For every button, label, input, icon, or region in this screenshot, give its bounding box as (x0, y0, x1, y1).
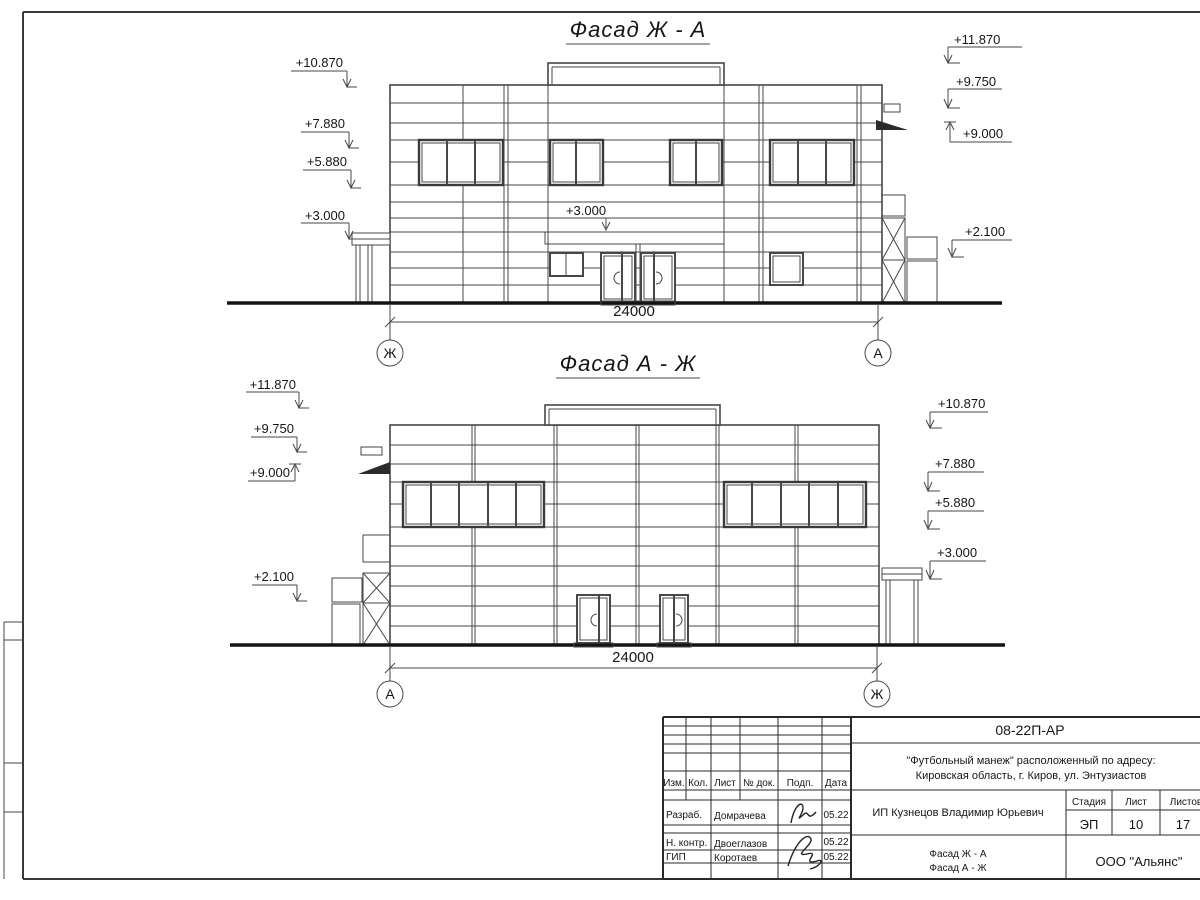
elevation-mark: +2.100 (252, 569, 307, 601)
svg-text:+9.750: +9.750 (254, 421, 294, 436)
side-window (770, 253, 803, 285)
parapet (545, 405, 720, 425)
elevation-mark: +9.750 (251, 421, 307, 452)
dimension-label: 24000 (612, 649, 654, 666)
elevation-mark: +9.000 (944, 122, 1012, 142)
sheet-label: Лист (1125, 797, 1147, 808)
elevation-mark: +7.880 (924, 456, 984, 491)
svg-text:+9.750: +9.750 (956, 74, 996, 89)
axis-label: Ж (384, 345, 397, 361)
elevation-mark: +10.870 (926, 396, 988, 428)
svg-text:+7.880: +7.880 (305, 116, 345, 131)
col-izm: Изм. (663, 778, 684, 789)
svg-text:Двоеглазов: Двоеглазов (714, 839, 767, 850)
sheet-name-line1: Фасад Ж - А (929, 849, 986, 860)
project-name-line1: "Футбольный манеж" расположенный по адре… (906, 755, 1155, 767)
doc-number: 08-22П-АР (995, 722, 1064, 738)
svg-text:+11.870: +11.870 (250, 377, 296, 392)
svg-text:Домрачева: Домрачева (714, 811, 766, 822)
facade-top-stairs (876, 104, 937, 303)
facade-bottom-marks-left: +11.870 +9.750 +9.000 +2.100 (246, 377, 309, 601)
elevation-mark: +2.100 (948, 224, 1012, 257)
organization-name: ООО "Альянс" (1096, 854, 1183, 869)
svg-text:+9.000: +9.000 (250, 465, 290, 480)
dimension-label: 24000 (613, 303, 655, 320)
svg-text:+10.870: +10.870 (296, 55, 343, 70)
sheets-label: Листов (1170, 797, 1200, 808)
facade-bottom-stairs (332, 447, 390, 645)
signature (791, 804, 816, 823)
sheets-value: 17 (1176, 817, 1190, 832)
door (577, 595, 610, 643)
client-name: ИП Кузнецов Владимир Юрьевич (872, 807, 1043, 819)
svg-text:+5.880: +5.880 (307, 154, 347, 169)
svg-text:Н. контр.: Н. контр. (666, 838, 707, 849)
facade-top-porch (352, 233, 390, 303)
col-ndok: № док. (743, 778, 775, 789)
svg-text:+2.100: +2.100 (965, 224, 1005, 239)
elevation-mark: +9.750 (944, 74, 1002, 108)
elevation-mark: +5.880 (303, 154, 361, 188)
axis-label: Ж (871, 686, 884, 702)
facade-top: Фасад Ж - А (227, 17, 1022, 366)
elevation-mark: +10.870 (291, 55, 357, 87)
facade-bottom-title: Фасад А - Ж (560, 351, 697, 376)
title-block-header-row: Изм. Кол. Лист № док. Подп. Дата (663, 778, 847, 789)
project-name-line2: Кировская область, г. Киров, ул. Энтузиа… (916, 770, 1147, 782)
axis-label: А (873, 345, 883, 361)
elevation-mark: +9.000 (248, 464, 301, 481)
facade-bottom-porch (882, 568, 922, 645)
elevation-mark: +11.870 (246, 377, 309, 408)
elevation-mark: +11.870 (944, 32, 1022, 63)
svg-text:05.22: 05.22 (823, 810, 848, 821)
col-podp: Подп. (787, 778, 814, 789)
svg-text:05.22: 05.22 (823, 852, 848, 863)
sheet-name-line2: Фасад А - Ж (929, 863, 987, 874)
blueprint-canvas: Фасад Ж - А (0, 0, 1200, 900)
axis-label: А (385, 686, 395, 702)
svg-text:+10.870: +10.870 (938, 396, 985, 411)
facade-top-marks-left: +10.870 +7.880 +5.880 +3.000 (291, 55, 361, 239)
col-kol: Кол. (688, 778, 708, 789)
svg-text:+3.000: +3.000 (937, 545, 977, 560)
door (660, 595, 688, 643)
svg-text:+3.000: +3.000 (566, 203, 606, 218)
signature (788, 837, 821, 869)
col-data: Дата (825, 778, 848, 789)
svg-text:Коротаев: Коротаев (714, 853, 757, 864)
svg-text:+7.880: +7.880 (935, 456, 975, 471)
sheet-value: 10 (1129, 817, 1143, 832)
facade-top-title: Фасад Ж - А (570, 17, 707, 42)
svg-text:+11.870: +11.870 (954, 32, 1000, 47)
title-block: Изм. Кол. Лист № док. Подп. Дата Разраб.… (663, 717, 1200, 879)
facade-bottom-dimension: 24000 А Ж (377, 647, 890, 707)
svg-text:ГИП: ГИП (666, 852, 686, 863)
elevation-mark: +5.880 (924, 495, 984, 529)
svg-text:+3.000: +3.000 (305, 208, 345, 223)
stage-value: ЭП (1080, 817, 1099, 832)
elevation-mark: +7.880 (301, 116, 359, 148)
parapet (548, 63, 724, 85)
svg-text:05.22: 05.22 (823, 837, 848, 848)
facade-top-marks-right: +11.870 +9.750 +9.000 +2.100 (944, 32, 1022, 257)
svg-text:Разраб.: Разраб. (666, 809, 702, 821)
stage-label: Стадия (1072, 797, 1106, 808)
svg-text:+2.100: +2.100 (254, 569, 294, 584)
left-margin-boxes (4, 622, 23, 879)
facade-bottom: Фасад А - Ж (230, 351, 1005, 707)
svg-text:+9.000: +9.000 (963, 126, 1003, 141)
elevation-mark: +3.000 (926, 545, 986, 579)
facade-bottom-marks-right: +10.870 +7.880 +5.880 +3.000 (924, 396, 988, 579)
drawing-sheet: Фасад Ж - А (0, 0, 1200, 900)
entry-door-right (641, 253, 675, 302)
elevation-mark: +3.000 (301, 208, 359, 239)
svg-text:+5.880: +5.880 (935, 495, 975, 510)
col-list: Лист (714, 778, 736, 789)
entry-door-left (601, 253, 635, 302)
